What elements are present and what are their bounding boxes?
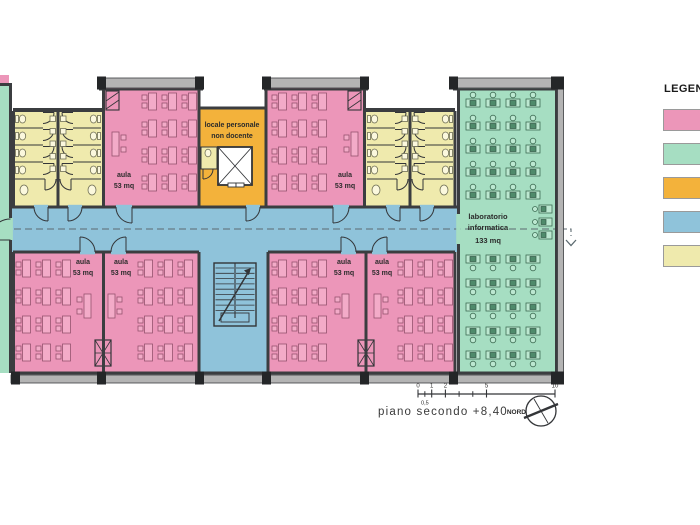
legend-swatch-staff: [663, 177, 700, 199]
svg-text:non docente: non docente: [211, 133, 253, 140]
svg-text:10: 10: [552, 384, 559, 390]
svg-text:133 mq: 133 mq: [475, 236, 501, 245]
legend-title: LEGENDA: [664, 83, 700, 95]
svg-text:53 mq: 53 mq: [73, 270, 93, 277]
svg-text:53 mq: 53 mq: [111, 270, 131, 277]
svg-text:piano secondo +8,40: piano secondo +8,40: [378, 406, 508, 418]
svg-text:aula: aula: [375, 259, 389, 266]
svg-text:aula: aula: [117, 172, 131, 179]
svg-text:NORD: NORD: [507, 409, 526, 416]
legend-swatch-classrooms: [663, 109, 700, 131]
legend-swatch-services: [663, 245, 700, 267]
svg-text:53 mq: 53 mq: [334, 270, 354, 277]
floor-plan-canvas: aula53 mqaula53 mqaula53 mqaula53 mqaula…: [0, 0, 700, 525]
svg-text:aula: aula: [76, 259, 90, 266]
svg-text:1: 1: [430, 384, 434, 390]
svg-text:aula: aula: [337, 259, 351, 266]
legend-swatch-circulation: [663, 211, 700, 233]
legend-items: [660, 109, 700, 267]
svg-text:informatica: informatica: [468, 223, 509, 232]
svg-text:5: 5: [485, 384, 489, 390]
svg-text:aula: aula: [338, 172, 352, 179]
floor-plan-svg: aula53 mqaula53 mqaula53 mqaula53 mqaula…: [0, 0, 700, 525]
svg-text:laboratorio: laboratorio: [468, 212, 508, 221]
footer: 0125100,5piano secondo +8,40NORD: [378, 384, 559, 427]
legend: LEGENDA: [660, 83, 700, 267]
svg-text:53 mq: 53 mq: [372, 270, 392, 277]
legend-swatch-laboratory: [663, 143, 700, 165]
svg-text:aula: aula: [114, 259, 128, 266]
svg-text:locale personale: locale personale: [205, 122, 260, 129]
svg-text:53 mq: 53 mq: [335, 183, 355, 190]
svg-text:0: 0: [416, 384, 420, 390]
svg-text:2: 2: [444, 384, 448, 390]
svg-text:53 mq: 53 mq: [114, 183, 134, 190]
